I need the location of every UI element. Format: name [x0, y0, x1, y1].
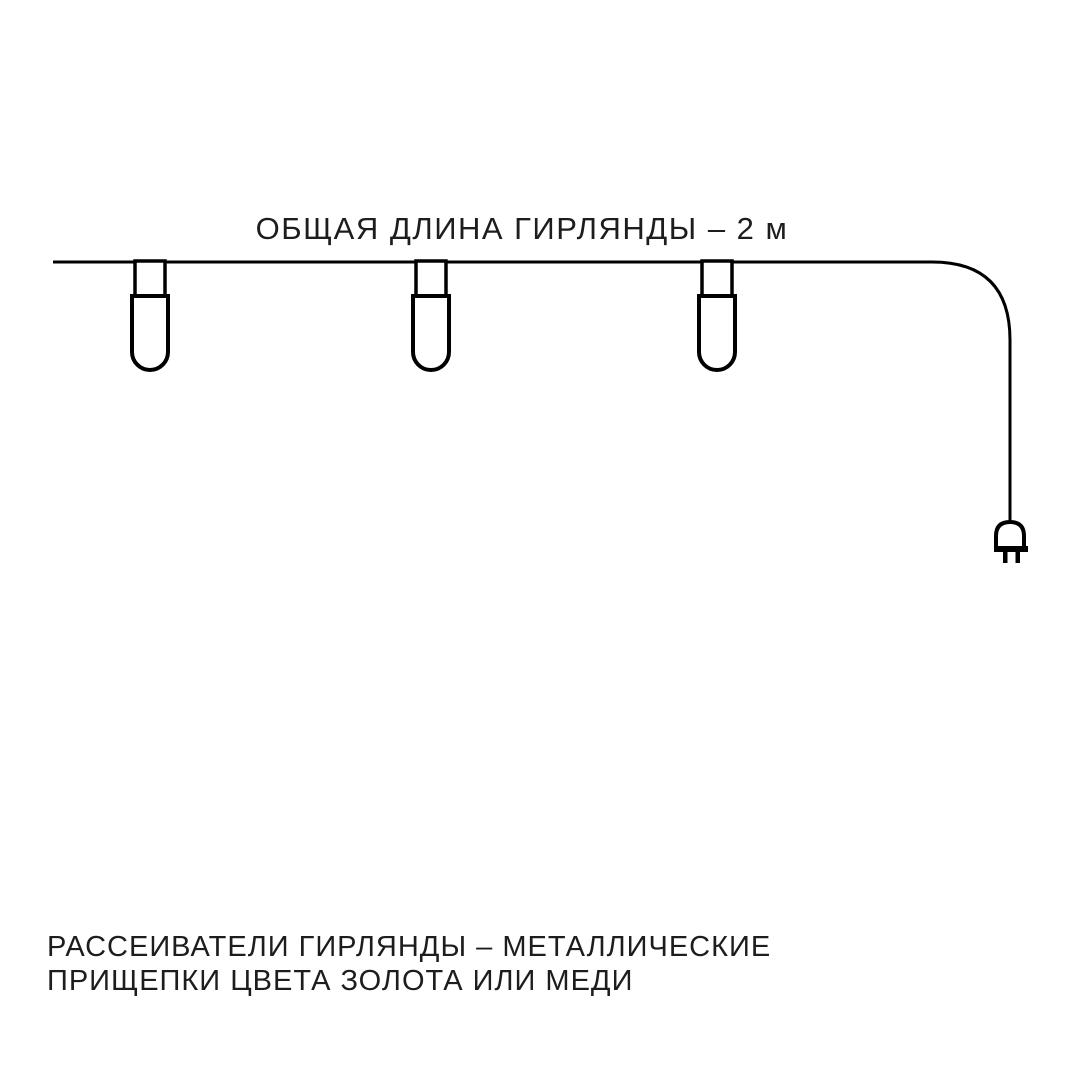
- caption-line-2: ПРИЩЕПКИ ЦВЕТА ЗОЛОТА ИЛИ МЕДИ: [47, 964, 771, 998]
- plug-prong-left: [1003, 552, 1008, 563]
- caption-line-1: РАССЕИВАТЕЛИ ГИРЛЯНДЫ – МЕТАЛЛИЧЕСКИЕ: [47, 930, 771, 964]
- lamp-bulb: [132, 296, 168, 370]
- lamp-bulb: [699, 296, 735, 370]
- clip-lamp-icon: [699, 261, 735, 370]
- plug-icon: [994, 522, 1028, 563]
- clip-lamp-icon: [132, 261, 168, 370]
- lamp-clip: [135, 261, 165, 297]
- garland-wire: [53, 262, 1010, 523]
- plug-base: [994, 546, 1028, 552]
- plug-body: [996, 522, 1024, 548]
- garland-diagram: ОБЩАЯ ДЛИНА ГИРЛЯНДЫ – 2 м РАССЕИВАТЕЛИ: [0, 0, 1080, 1080]
- lamp-clip: [416, 261, 446, 297]
- diffusers-caption: РАССЕИВАТЕЛИ ГИРЛЯНДЫ – МЕТАЛЛИЧЕСКИЕ ПР…: [47, 930, 771, 998]
- lamp-bulb: [413, 296, 449, 370]
- plug-prong-right: [1016, 552, 1021, 563]
- clip-lamp-icon: [413, 261, 449, 370]
- lamp-clip: [702, 261, 732, 297]
- garland-drawing: [0, 0, 1080, 1080]
